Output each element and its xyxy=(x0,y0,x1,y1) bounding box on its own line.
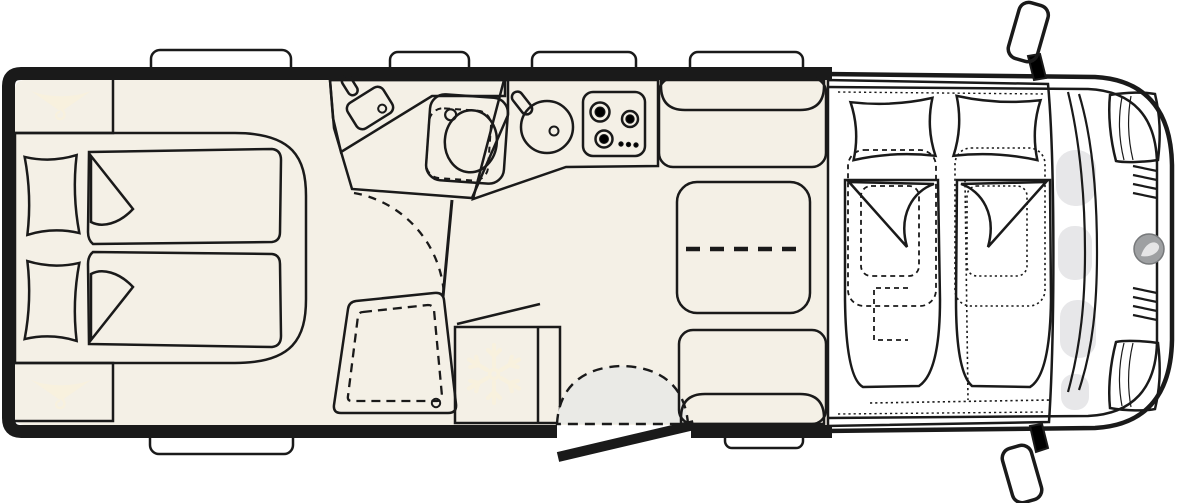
cab-seat-outline-right xyxy=(870,148,1050,403)
headlight-top-detail xyxy=(1120,96,1133,160)
hood-shade xyxy=(1061,374,1089,410)
brand-logo xyxy=(1134,234,1164,264)
cab-front xyxy=(826,0,1172,503)
grille-lower xyxy=(1133,288,1157,320)
cab-body-inner-line xyxy=(826,87,1157,418)
duvet-fold xyxy=(961,182,1046,247)
grille-upper xyxy=(1133,166,1157,198)
cab-bed-pillow xyxy=(953,96,1040,160)
hood-shade xyxy=(1058,226,1092,280)
mirror-top xyxy=(1006,0,1051,80)
entry-door-leaf xyxy=(558,425,694,457)
floor-plan-canvas xyxy=(0,0,1200,503)
cab-bed-duvet xyxy=(845,180,940,387)
headlight-bottom-detail xyxy=(1120,343,1133,407)
cab-seat-outline-left xyxy=(848,150,936,340)
hob-knobs xyxy=(619,142,638,147)
cab-seats xyxy=(845,96,1051,403)
mirror-bottom xyxy=(1000,424,1048,503)
cab-bed-duvet xyxy=(956,180,1051,387)
hood-shade xyxy=(1056,150,1096,206)
floor-plan-svg xyxy=(0,0,1200,503)
